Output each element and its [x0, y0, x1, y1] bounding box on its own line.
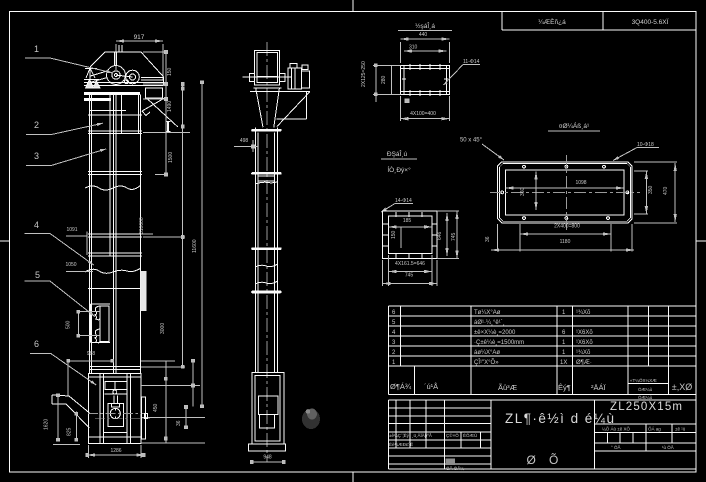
svg-text:4X161.5=646: 4X161.5=646 [395, 261, 425, 267]
svg-text:470: 470 [663, 186, 669, 195]
svg-text:¹¾Xõ: ¹¾Xõ [576, 310, 591, 316]
svg-text:ZL¶·ê½ì d é¼ù: ZL¶·ê½ì d é¼ù [505, 411, 614, 426]
svg-text:±ê ¹ù: ±ê ¹ù [675, 427, 686, 432]
svg-text:·Ç±ê¼è¸=1500mm: ·Ç±ê¼è¸=1500mm [474, 340, 524, 346]
svg-text:¹¾Xõ: ¹¾Xõ [576, 350, 591, 356]
svg-text:917: 917 [134, 34, 145, 41]
svg-text:745: 745 [405, 273, 414, 279]
svg-text:Ãû³Æ: Ãû³Æ [498, 383, 518, 392]
svg-text:Ø: Ø [527, 453, 536, 467]
svg-text:1X: 1X [560, 360, 567, 366]
svg-text:áø¼X°Aø: áø¼X°Aø [474, 350, 500, 356]
svg-text:° ÕÅ: ° ÕÅ [611, 444, 621, 450]
svg-text:Ø¶Á¾: Ø¶Á¾ [390, 382, 412, 391]
svg-text:1098: 1098 [575, 180, 586, 186]
svg-text:825: 825 [67, 427, 73, 436]
svg-text:¤Ø¼Áß¸á¹: ¤Ø¼Áß¸á¹ [559, 121, 590, 130]
svg-text:988: 988 [87, 351, 96, 357]
svg-text:Éè¼ÆÐ£ºË: Éè¼ÆÐ£ºË [389, 441, 413, 447]
svg-text:´ú¹Å: ´ú¹Å [424, 382, 438, 391]
svg-text:1091: 1091 [66, 227, 77, 233]
svg-text:1490: 1490 [167, 101, 173, 112]
svg-text:2: 2 [34, 120, 39, 130]
svg-text:36: 36 [485, 236, 491, 242]
svg-text:440: 440 [419, 32, 428, 38]
svg-text:ÈÕÆÚ: ÈÕÆÚ [463, 432, 477, 438]
svg-text:4X100=400: 4X100=400 [410, 111, 436, 117]
svg-text:1620: 1620 [44, 419, 50, 430]
svg-text:¼Ö Áù ±ê XÕ: ¼Ö Áù ±ê XÕ [602, 426, 630, 432]
svg-text:¼ÆÈñ¿á: ¼ÆÈñ¿á [538, 17, 566, 26]
svg-text:Ø¶Æ·: Ø¶Æ· [576, 360, 592, 366]
svg-text:ĐŞáÎ¸ú: ĐŞáÎ¸ú [387, 149, 408, 158]
svg-text:²ÄÁÏ: ²ÄÁÏ [591, 383, 607, 392]
svg-text:1500: 1500 [168, 152, 174, 163]
svg-text:310: 310 [409, 45, 418, 51]
svg-text:948: 948 [263, 455, 272, 461]
svg-text:745: 745 [451, 232, 457, 241]
svg-text:áØ¹·¼¸°ê¹´¸: áØ¹·¼¸°ê¹´¸ [474, 320, 505, 326]
svg-text:310000: 310000 [139, 217, 145, 234]
svg-text:ÓÆ¼ù: ÓÆ¼ù [638, 394, 653, 400]
svg-text:¹X6Xõ: ¹X6Xõ [576, 330, 593, 336]
svg-text:ZL250X15m: ZL250X15m [610, 401, 682, 413]
svg-text:Õ: Õ [549, 452, 558, 467]
svg-text:±,XØ: ±,XØ [672, 382, 692, 392]
svg-text:ÓÆ¼ù: ÓÆ¼ù [638, 386, 653, 392]
svg-text:¸ü¸ÄÎÄþºÅ: ¸ü¸ÄÎÄþºÅ [412, 432, 432, 439]
svg-text:350: 350 [648, 185, 654, 194]
svg-text:498: 498 [240, 138, 249, 144]
svg-text:ÍÒ¸Đý×°: ÍÒ¸Đý×° [387, 165, 411, 174]
svg-text:¹X6Xõ: ¹X6Xõ [576, 340, 593, 346]
svg-text:1050: 1050 [65, 262, 76, 268]
svg-text:280: 280 [381, 75, 387, 84]
svg-text:Ç©×Ö: Ç©×Ö [446, 432, 459, 438]
svg-text:50 x 45°: 50 x 45° [460, 138, 483, 144]
svg-text:6: 6 [34, 339, 39, 349]
svg-text:150: 150 [167, 67, 173, 76]
svg-text:±ê¼Ç´¦Êý: ±ê¼Ç´¦Êý [389, 431, 410, 438]
svg-text:646: 646 [437, 231, 443, 240]
svg-text:±ê×X¼è¸=2000: ±ê×X¼è¸=2000 [474, 330, 516, 336]
svg-text:1180: 1180 [560, 239, 571, 245]
svg-text:¹ù ÕÅ: ¹ù ÕÅ [662, 444, 674, 450]
svg-text:150: 150 [391, 230, 397, 239]
svg-text:3: 3 [34, 151, 39, 161]
svg-text:Êý¶: Êý¶ [558, 383, 571, 392]
svg-text:2X400=800: 2X400=800 [554, 224, 580, 230]
svg-text:3000: 3000 [160, 323, 166, 334]
svg-text:2X125=250: 2X125=250 [361, 61, 367, 87]
svg-text:1: 1 [34, 44, 39, 54]
svg-text:4: 4 [34, 220, 39, 230]
svg-text:36: 36 [176, 420, 182, 426]
svg-text:ÇÎ¹"X°Õ»: ÇÎ¹"X°Õ» [474, 359, 499, 366]
svg-text:1286: 1286 [110, 448, 121, 454]
svg-text:ÖÁ ag: ÖÁ ag [648, 426, 661, 432]
svg-text:450: 450 [153, 403, 159, 412]
svg-text:360: 360 [520, 187, 526, 196]
svg-text:ÖÅ ÕÅ¼: ÖÅ ÕÅ¼ [446, 465, 464, 471]
svg-text:3Q400-5.6XÏ: 3Q400-5.6XÏ [632, 18, 669, 26]
svg-text:½şáÎ¸á: ½şáÎ¸á [415, 21, 435, 30]
svg-text:500: 500 [66, 320, 72, 329]
svg-text:Tø¼X°Aø: Tø¼X°Aø [474, 310, 501, 316]
svg-text:11600: 11600 [192, 239, 198, 253]
svg-text:5: 5 [35, 270, 40, 280]
svg-text:185: 185 [403, 218, 412, 224]
svg-text:«T¼ÖX¼XÆ: «T¼ÖX¼XÆ [630, 377, 657, 383]
